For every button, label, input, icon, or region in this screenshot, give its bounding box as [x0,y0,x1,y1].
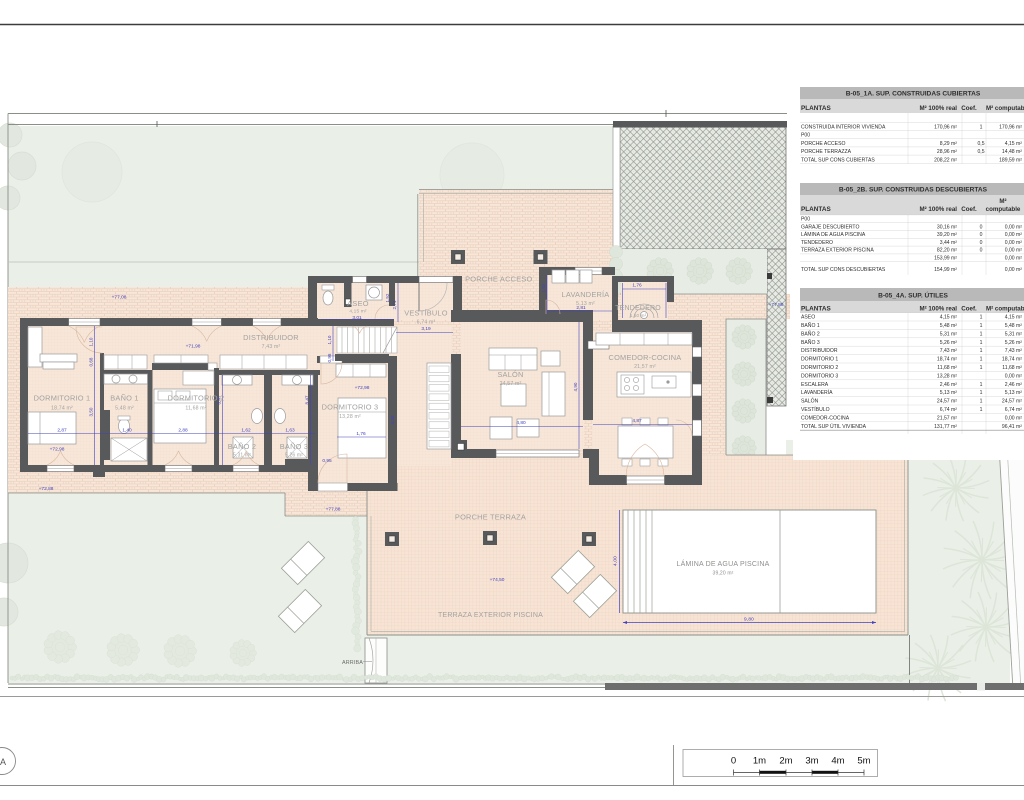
svg-text:Coef.: Coef. [961,306,977,313]
svg-text:TERRAZA EXTERIOR PISCINA: TERRAZA EXTERIOR PISCINA [438,612,543,619]
svg-text:0: 0 [980,240,983,246]
svg-text:6,74 m²: 6,74 m² [1005,407,1023,413]
svg-text:3,19: 3,19 [421,326,431,332]
svg-text:5,26 m²: 5,26 m² [940,340,958,346]
svg-text:4,90: 4,90 [573,382,578,391]
svg-text:5,48 m²: 5,48 m² [940,323,958,329]
svg-text:2,46 m²: 2,46 m² [1005,382,1023,388]
svg-text:0,5: 0,5 [977,141,984,147]
svg-text:1: 1 [980,390,983,396]
svg-text:BAÑO 2: BAÑO 2 [801,330,820,337]
svg-text:11,68 m²: 11,68 m² [185,406,206,412]
svg-text:DORMITORIO 1: DORMITORIO 1 [801,357,838,363]
svg-text:6,74 m²: 6,74 m² [417,320,436,326]
svg-text:BAÑO 3: BAÑO 3 [280,442,308,451]
svg-text:M² 100% real: M² 100% real [920,306,958,313]
svg-text:153,99 m²: 153,99 m² [934,256,957,262]
svg-text:39,20 m²: 39,20 m² [937,232,957,238]
svg-text:1,52: 1,52 [541,283,546,292]
svg-text:1: 1 [980,407,983,413]
svg-text:PLANTAS: PLANTAS [801,105,831,112]
svg-text:1: 1 [980,382,983,388]
svg-text:11,68 m²: 11,68 m² [937,365,957,371]
svg-text:Coef.: Coef. [961,105,977,112]
svg-text:ASEO: ASEO [801,315,815,321]
svg-text:0: 0 [980,224,983,230]
svg-text:SALÓN: SALÓN [801,398,819,405]
svg-text:5,31 m²: 5,31 m² [940,331,958,337]
svg-text:0: 0 [980,232,983,238]
svg-text:96,41 m²: 96,41 m² [1002,424,1022,430]
svg-text:189,59 m²: 189,59 m² [999,157,1022,163]
svg-text:0,00 m²: 0,00 m² [1005,232,1023,238]
svg-text:PLANTAS: PLANTAS [801,306,831,313]
svg-text:24,57 m²: 24,57 m² [500,381,522,387]
svg-text:CONSTRUIDA INTERIOR VIVIENDA: CONSTRUIDA INTERIOR VIVIENDA [801,125,886,131]
svg-text:TERRAZA EXTERIOR PISCINA: TERRAZA EXTERIOR PISCINA [801,248,874,254]
svg-text:BAÑO 3: BAÑO 3 [801,339,820,346]
svg-text:0,00 m²: 0,00 m² [1005,373,1023,379]
svg-text:TENDEDERO: TENDEDERO [615,305,661,312]
svg-text:3,50: 3,50 [89,407,94,416]
svg-text:0,00 m²: 0,00 m² [1005,267,1023,273]
svg-text:0: 0 [731,756,736,767]
svg-text:2,87: 2,87 [57,428,67,434]
svg-text:+72,98: +72,98 [355,385,370,391]
svg-text:13,28 m²: 13,28 m² [937,373,957,379]
svg-text:1: 1 [980,348,983,354]
svg-text:COMEDOR-COCINA: COMEDOR-COCINA [609,353,682,362]
svg-text:5,26 m²: 5,26 m² [1005,340,1023,346]
svg-text:3,44 m²: 3,44 m² [940,240,958,246]
svg-text:1m: 1m [753,756,766,767]
svg-text:BAÑO 2: BAÑO 2 [228,442,256,451]
svg-text:Coef.: Coef. [961,206,977,213]
svg-text:GARAJE DESCUBIERTO: GARAJE DESCUBIERTO [801,224,859,230]
svg-text:5,13 m²: 5,13 m² [1005,390,1023,396]
svg-text:4,00: 4,00 [613,556,619,566]
svg-text:82,20 m²: 82,20 m² [937,248,957,254]
svg-text:TOTAL SUP CONS CUBIERTAS: TOTAL SUP CONS CUBIERTAS [801,157,875,163]
svg-text:1,60 m²: 1,60 m² [630,313,647,318]
svg-text:3,01: 3,01 [352,315,362,321]
svg-text:18,74 m²: 18,74 m² [1002,357,1022,363]
svg-text:1: 1 [980,331,983,337]
svg-text:154,99 m²: 154,99 m² [934,267,957,273]
svg-text:BAÑO 1: BAÑO 1 [801,322,820,329]
svg-text:TENDEDERO: TENDEDERO [801,240,833,246]
svg-text:DISTRIBUIDOR: DISTRIBUIDOR [801,348,838,354]
svg-text:0,00 m²: 0,00 m² [1005,248,1023,254]
svg-text:1,10: 1,10 [89,337,94,346]
svg-text:8,29 m²: 8,29 m² [940,141,958,147]
svg-text:ASEO: ASEO [347,299,368,308]
svg-text:9,80: 9,80 [744,617,754,623]
svg-text:ARRIBA: ARRIBA [342,660,363,666]
svg-text:+77,88: +77,88 [326,507,341,513]
svg-text:DISTRIBUIDOR: DISTRIBUIDOR [243,333,299,342]
svg-text:LAVANDERÍA: LAVANDERÍA [801,389,833,396]
svg-text:+72,98: +72,98 [50,447,65,453]
svg-text:LAVANDERÍA: LAVANDERÍA [562,290,610,299]
svg-text:39,20 m²: 39,20 m² [713,571,734,577]
svg-text:1,62: 1,62 [241,428,251,434]
svg-text:0,68: 0,68 [89,357,94,366]
svg-text:PORCHE TERRAZZA: PORCHE TERRAZZA [801,149,852,155]
svg-text:21,57 m²: 21,57 m² [634,364,656,370]
svg-text:0,00 m²: 0,00 m² [1005,256,1023,262]
svg-text:1: 1 [980,399,983,405]
svg-text:DORMITORIO 3: DORMITORIO 3 [322,403,379,412]
svg-text:1,52: 1,52 [385,293,390,302]
svg-text:14,48 m²: 14,48 m² [1002,149,1022,155]
svg-text:24,57 m²: 24,57 m² [1002,399,1022,405]
svg-text:PORCHE ACCESO: PORCHE ACCESO [465,275,532,284]
svg-text:M² computable: M² computable [986,105,1024,112]
svg-text:PORCHE TERRAZA: PORCHE TERRAZA [455,513,526,522]
svg-text:0: 0 [980,248,983,254]
svg-text:4,87: 4,87 [632,418,642,424]
svg-text:2,71: 2,71 [392,300,397,309]
svg-text:5,13 m²: 5,13 m² [576,301,595,307]
svg-text:B-05_1A. SUP. CONSTRUIDAS CUBI: B-05_1A. SUP. CONSTRUIDAS CUBIERTAS [846,91,981,98]
svg-text:170,96 m²: 170,96 m² [934,125,957,131]
svg-text:DORMITORIO 1: DORMITORIO 1 [34,394,91,403]
svg-text:4,15 m²: 4,15 m² [1005,141,1023,147]
svg-text:+77,08: +77,08 [112,295,127,301]
svg-text:+72,88: +72,88 [39,486,54,492]
svg-text:18,74 m²: 18,74 m² [937,357,957,363]
svg-text:PORCHE ACCESO: PORCHE ACCESO [801,141,845,147]
svg-text:A: A [0,757,6,767]
svg-text:131,77 m²: 131,77 m² [934,424,957,430]
svg-text:+77,88: +77,88 [769,302,784,308]
svg-text:1,10: 1,10 [327,335,332,344]
svg-text:7,43 m²: 7,43 m² [1005,348,1023,354]
svg-text:5,13 m²: 5,13 m² [940,390,958,396]
svg-text:2,88: 2,88 [178,428,188,434]
svg-text:LÁMINA DE AGUA PISCINA: LÁMINA DE AGUA PISCINA [677,559,770,568]
svg-text:21,57 m²: 21,57 m² [937,415,957,421]
svg-text:4,15 m²: 4,15 m² [349,309,367,315]
svg-text:4,15 m²: 4,15 m² [1005,315,1023,321]
svg-text:5,31 m²: 5,31 m² [233,453,251,459]
svg-text:1: 1 [980,340,983,346]
svg-text:computable: computable [986,206,1021,213]
svg-text:4,80: 4,80 [516,420,526,426]
svg-text:BAÑO 1: BAÑO 1 [110,394,138,403]
svg-text:DORMITORIO 2: DORMITORIO 2 [168,394,225,403]
svg-text:0,00 m²: 0,00 m² [1005,415,1023,421]
svg-text:PLANTAS: PLANTAS [801,206,831,213]
svg-text:M² 100% real: M² 100% real [920,105,958,112]
svg-text:28,96 m²: 28,96 m² [937,149,957,155]
svg-text:M² computable: M² computable [986,306,1024,313]
svg-text:DORMITORIO 2: DORMITORIO 2 [801,365,838,371]
svg-text:2m: 2m [779,756,792,767]
svg-text:4,15 m²: 4,15 m² [940,315,958,321]
svg-text:TOTAL SUP ÚTIL VIVIENDA: TOTAL SUP ÚTIL VIVIENDA [801,423,867,430]
svg-text:+74,50: +74,50 [490,577,505,583]
svg-text:1,63: 1,63 [285,428,295,434]
svg-text:0,00 m²: 0,00 m² [1005,224,1023,230]
svg-text:3m: 3m [805,756,818,767]
svg-text:7,43 m²: 7,43 m² [940,348,958,354]
svg-text:SALÓN: SALÓN [497,370,523,379]
svg-text:LÁMINA DE AGUA PISCINA: LÁMINA DE AGUA PISCINA [801,231,866,238]
svg-text:DORMITORIO 3: DORMITORIO 3 [801,373,838,379]
svg-text:0,95: 0,95 [322,458,332,464]
svg-text:+71,98: +71,98 [186,344,201,350]
svg-text:B-05_4A. SUP. ÚTILES: B-05_4A. SUP. ÚTILES [878,291,948,300]
svg-text:COMEDOR-COCINA: COMEDOR-COCINA [801,415,850,421]
svg-text:1,76: 1,76 [356,431,366,437]
svg-text:5,48 m²: 5,48 m² [1005,323,1023,329]
svg-text:1: 1 [980,357,983,363]
svg-text:8,47: 8,47 [305,395,310,404]
svg-text:1: 1 [980,323,983,329]
svg-text:7,43 m²: 7,43 m² [262,344,281,350]
svg-text:5,48 m²: 5,48 m² [115,406,134,412]
svg-text:P00: P00 [801,217,810,223]
svg-text:M² 100% real: M² 100% real [920,206,958,213]
svg-text:5,26 m²: 5,26 m² [285,453,303,459]
svg-text:VESTÍBULO: VESTÍBULO [801,406,830,413]
svg-text:208,22 m²: 208,22 m² [934,157,957,163]
svg-text:30,16 m²: 30,16 m² [937,224,957,230]
svg-text:ESCALERA: ESCALERA [801,382,829,388]
svg-text:13,28 m²: 13,28 m² [339,414,361,420]
svg-text:4m: 4m [831,756,844,767]
svg-text:1: 1 [980,365,983,371]
svg-text:B-05_2B. SUP. CONSTRUIDAS DESC: B-05_2B. SUP. CONSTRUIDAS DESCUBIERTAS [839,187,988,194]
svg-text:0,5: 0,5 [977,149,984,155]
svg-text:18,74 m²: 18,74 m² [51,406,73,412]
svg-text:0,00 m²: 0,00 m² [1005,240,1023,246]
svg-text:1: 1 [980,315,983,321]
svg-text:1: 1 [980,125,983,131]
svg-text:4,86: 4,86 [390,415,395,424]
svg-text:6,74 m²: 6,74 m² [940,407,958,413]
svg-text:1,76: 1,76 [632,283,642,289]
svg-text:2,46 m²: 2,46 m² [940,382,958,388]
svg-text:24,57 m²: 24,57 m² [937,399,957,405]
svg-text:1,40: 1,40 [122,428,132,434]
svg-text:TOTAL SUP CONS DESCUBIERTAS: TOTAL SUP CONS DESCUBIERTAS [801,267,886,273]
svg-text:11,68 m²: 11,68 m² [1002,365,1022,371]
svg-text:VESTÍBULO: VESTÍBULO [404,309,448,318]
svg-text:5,31 m²: 5,31 m² [1005,331,1023,337]
svg-text:0,98: 0,98 [327,353,332,362]
svg-text:M²: M² [999,198,1006,205]
svg-text:P00: P00 [801,133,810,139]
svg-text:170,96 m²: 170,96 m² [999,125,1022,131]
svg-text:5m: 5m [857,756,870,767]
